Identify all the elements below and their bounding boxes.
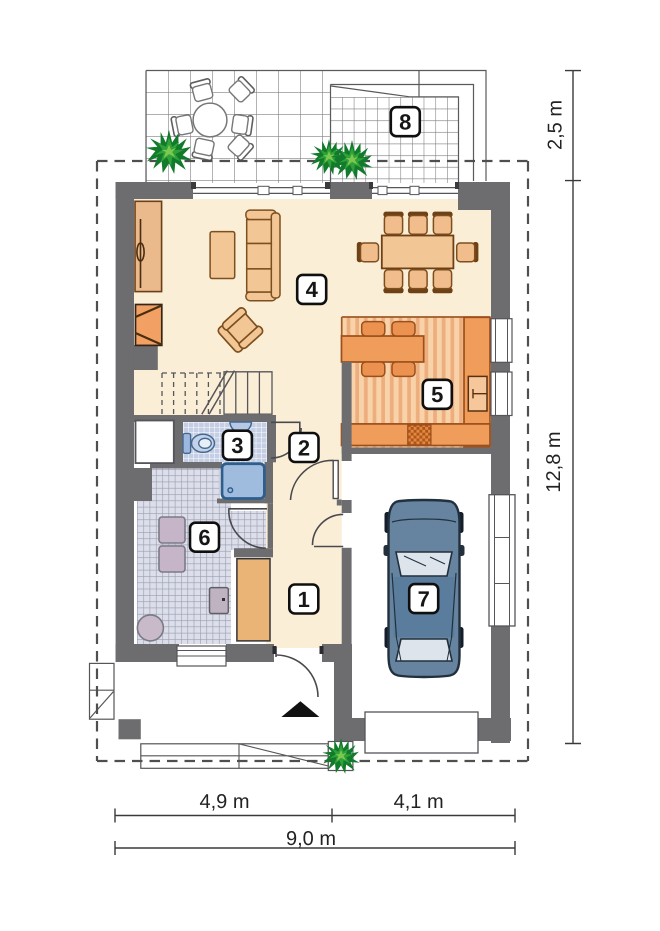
- svg-text:4,1 m: 4,1 m: [394, 791, 444, 813]
- svg-text:4: 4: [306, 277, 319, 302]
- svg-text:12,8 m: 12,8 m: [543, 431, 565, 492]
- svg-text:9,0 m: 9,0 m: [286, 828, 336, 850]
- svg-text:1: 1: [298, 587, 310, 612]
- svg-text:4,9 m: 4,9 m: [199, 791, 249, 813]
- svg-text:7: 7: [418, 586, 430, 611]
- svg-text:6: 6: [198, 525, 210, 550]
- svg-text:5: 5: [431, 382, 443, 407]
- svg-text:2,5 m: 2,5 m: [545, 100, 567, 150]
- svg-text:3: 3: [231, 433, 243, 458]
- svg-text:2: 2: [298, 435, 310, 460]
- svg-text:8: 8: [399, 110, 411, 135]
